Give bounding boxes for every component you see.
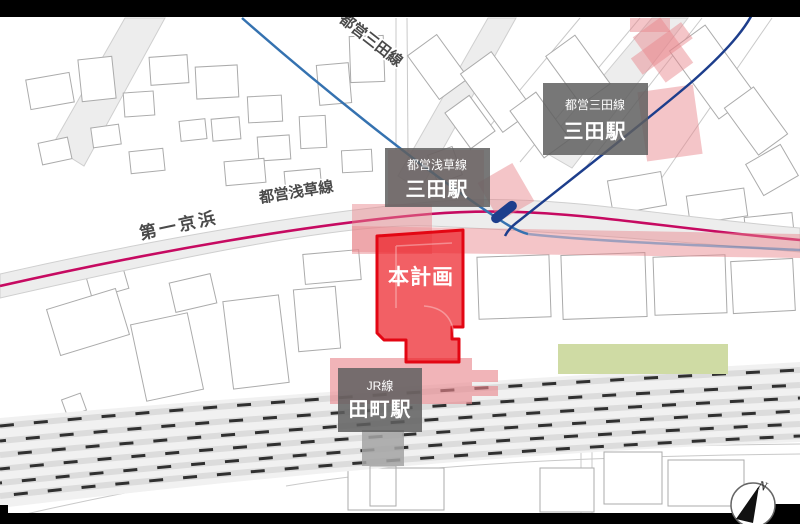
mita-subway-station-label: 三田駅	[564, 120, 627, 143]
station-deck	[362, 430, 404, 466]
mita-subway-line-label: 都営三田線	[565, 97, 625, 112]
tamachi-station-label: 田町駅	[349, 398, 412, 421]
station-box-mita-subway: 都営三田線 三田駅	[543, 83, 648, 155]
station-box-asakusa-subway: 都営浅草線 三田駅	[385, 148, 490, 207]
asakusa-subway-station-label: 三田駅	[406, 178, 469, 201]
jr-line-label: JR線	[367, 378, 394, 393]
park-area	[558, 344, 728, 374]
site-area-map: 本計画 都営三田線 三田駅 都営浅草線 三田駅 JR線 田町駅 都営三田線 都営…	[0, 0, 800, 524]
asakusa-subway-line-label: 都営浅草線	[407, 157, 467, 172]
station-box-jr-tamachi: JR線 田町駅	[338, 368, 422, 432]
map-figure: 本計画 都営三田線 三田駅 都営浅草線 三田駅 JR線 田町駅 都営三田線 都営…	[0, 0, 800, 524]
project-site-label: 本計画	[388, 265, 454, 289]
